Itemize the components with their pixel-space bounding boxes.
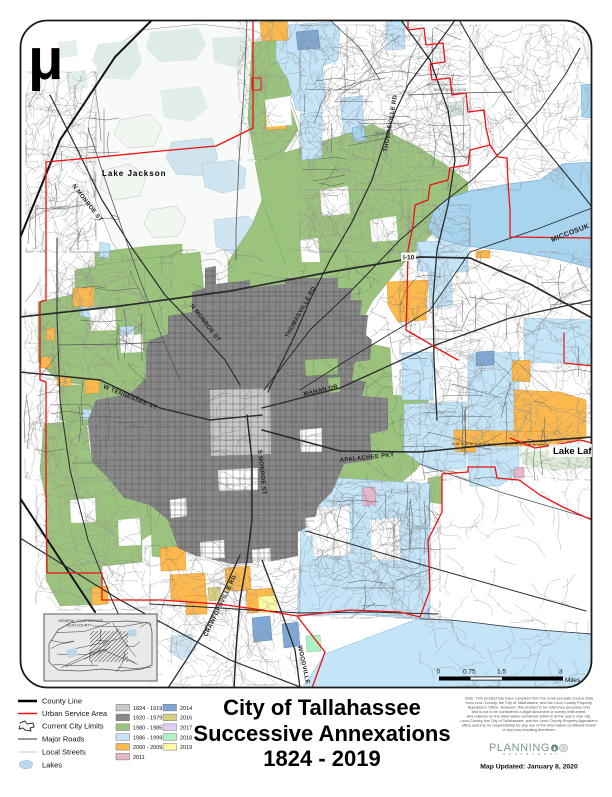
- svg-text:BRADFORDVILLE RD: BRADFORDVILLE RD: [434, 88, 467, 92]
- svg-text:City of Tallahassee: City of Tallahassee: [223, 695, 421, 720]
- svg-text:D E P A R T M E N T: D E P A R T M E N T: [503, 752, 559, 756]
- svg-text:2000 - 2009: 2000 - 2009: [133, 745, 162, 751]
- svg-text:0: 0: [437, 669, 441, 676]
- svg-text:Lake Laf: Lake Laf: [553, 446, 592, 457]
- svg-text:County Line: County Line: [42, 697, 82, 706]
- svg-text:Local Streets: Local Streets: [42, 748, 86, 757]
- svg-text:3: 3: [559, 669, 563, 676]
- svg-text:Map Updated: January 8, 2020: Map Updated: January 8, 2020: [480, 764, 578, 771]
- svg-text:I-10: I-10: [403, 255, 415, 262]
- svg-text:1986 - 1999: 1986 - 1999: [133, 735, 162, 741]
- svg-text:1920 - 1979: 1920 - 1979: [133, 716, 162, 722]
- svg-text:0.75: 0.75: [463, 669, 476, 676]
- svg-text:or any loss resulting therefro: or any loss resulting therefrom.: [502, 727, 555, 732]
- svg-text:Lakes: Lakes: [42, 761, 62, 770]
- svg-text:2016: 2016: [180, 716, 192, 722]
- svg-text:Successive Annexations: Successive Annexations: [193, 721, 450, 746]
- svg-text:2011: 2011: [133, 755, 145, 761]
- svg-text:1824 - 1919: 1824 - 1919: [133, 706, 162, 712]
- svg-text:2019: 2019: [180, 745, 192, 751]
- svg-text:1980 - 1985: 1980 - 1985: [133, 726, 162, 732]
- svg-text:1824 - 2019: 1824 - 2019: [263, 746, 380, 771]
- svg-text:Major Roads: Major Roads: [42, 735, 85, 744]
- svg-text:Miles: Miles: [565, 677, 581, 684]
- svg-text:2014: 2014: [180, 706, 192, 712]
- svg-text:Lake Jackson: Lake Jackson: [102, 169, 166, 178]
- svg-text:μ: μ: [28, 27, 64, 92]
- svg-text:Current City Limits: Current City Limits: [42, 722, 104, 731]
- svg-text:Urban Service Area: Urban Service Area: [42, 709, 108, 718]
- svg-text:2017: 2017: [180, 726, 192, 732]
- svg-text:LEON COUNTY: LEON COUNTY: [66, 624, 93, 628]
- svg-text:2018: 2018: [180, 735, 192, 741]
- svg-text:1.5: 1.5: [497, 669, 506, 676]
